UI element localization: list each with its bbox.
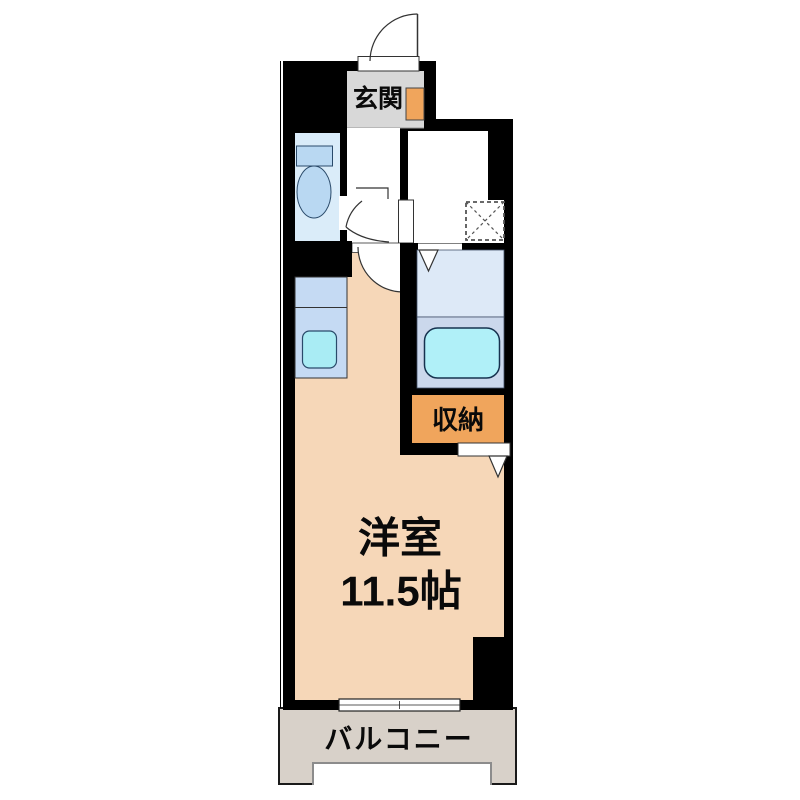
toilet-bowl <box>297 166 331 218</box>
toilet-tank <box>297 146 333 166</box>
topright-outside <box>436 58 514 119</box>
kitchen-sink <box>303 331 337 368</box>
room-type-label: 洋室 <box>358 515 442 562</box>
washroom-door <box>399 200 414 243</box>
balcony-label: バルコニー <box>324 724 473 755</box>
washroom-upper <box>408 131 488 200</box>
hallway <box>347 128 400 245</box>
washing-machine-pan <box>466 202 504 240</box>
floorplan-drawing: バルコニー 玄関 収納 <box>0 0 800 800</box>
entrance-label: 玄関 <box>353 84 403 113</box>
closet-door <box>458 443 510 456</box>
bathtub <box>425 328 500 378</box>
balcony-window <box>339 699 460 711</box>
storage-label: 収納 <box>432 405 484 435</box>
bottomright-wall <box>473 637 513 710</box>
floorplan-canvas: バルコニー 玄関 収納 <box>0 0 800 800</box>
entry-door-arc <box>370 14 418 61</box>
room-size-label: 11.5帖 <box>340 568 461 615</box>
kitchen-top-wall <box>295 241 352 277</box>
entry-door-threshold <box>358 57 419 72</box>
shoe-cabinet <box>406 88 424 120</box>
balcony-opening <box>313 763 491 785</box>
